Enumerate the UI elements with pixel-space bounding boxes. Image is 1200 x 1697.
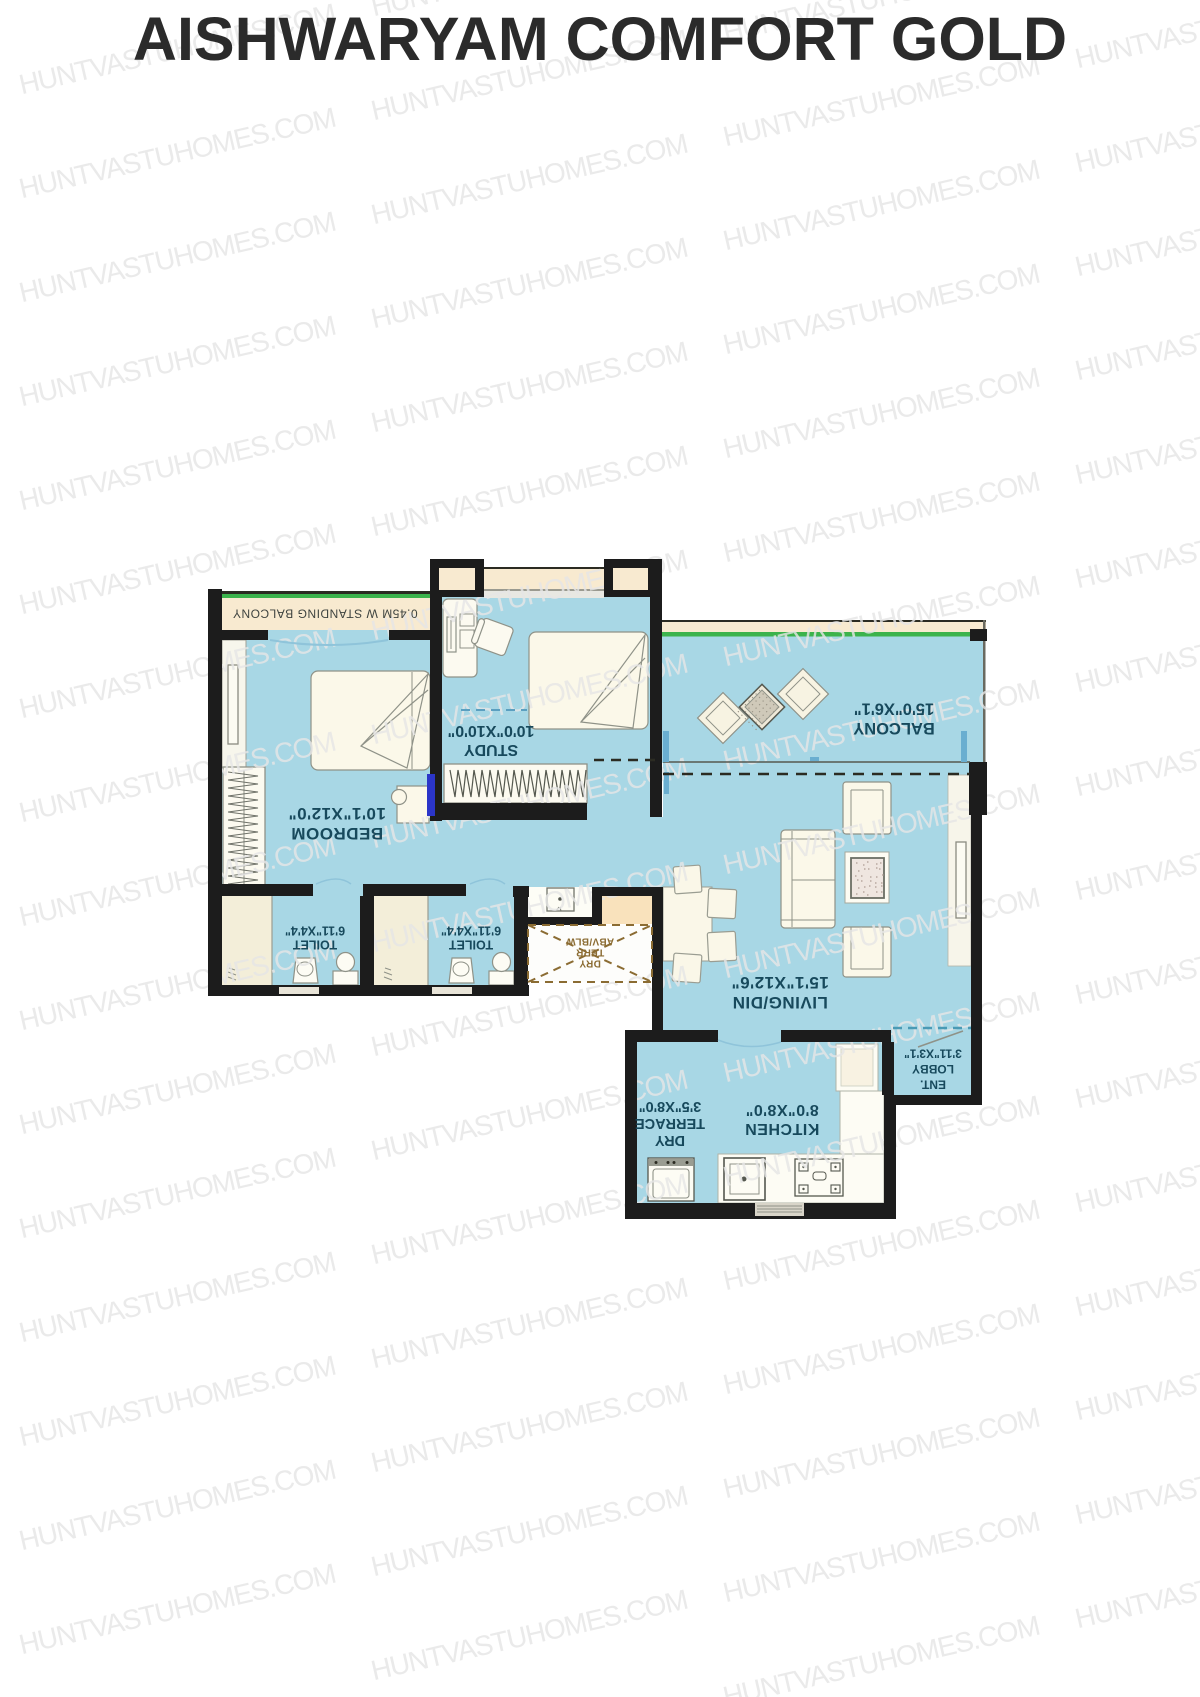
svg-text:TERR: TERR xyxy=(575,947,604,958)
svg-text:ENT.: ENT. xyxy=(920,1077,946,1091)
svg-text:6'11"X4'4": 6'11"X4'4" xyxy=(441,924,501,938)
svg-text:8'0"X8'0": 8'0"X8'0" xyxy=(745,1101,819,1118)
svg-text:6'11"X4'4": 6'11"X4'4" xyxy=(285,924,345,938)
svg-text:LOBBY: LOBBY xyxy=(912,1062,954,1076)
svg-text:BALCONY: BALCONY xyxy=(853,719,935,737)
svg-text:10'0"X10'0": 10'0"X10'0" xyxy=(448,722,535,739)
svg-text:10'1"X12'0": 10'1"X12'0" xyxy=(288,804,386,823)
svg-text:15'0"X6'1": 15'0"X6'1" xyxy=(854,699,934,717)
svg-text:TOILET: TOILET xyxy=(449,938,494,952)
svg-text:3'5"X8'0": 3'5"X8'0" xyxy=(639,1098,702,1114)
svg-text:3'11"X3'1": 3'11"X3'1" xyxy=(904,1046,962,1060)
svg-text:TERRACE: TERRACE xyxy=(635,1115,705,1131)
svg-text:ABV/BLW: ABV/BLW xyxy=(566,936,614,947)
svg-text:DRY: DRY xyxy=(579,958,601,969)
svg-text:LIVING/DIN: LIVING/DIN xyxy=(732,993,828,1012)
svg-text:15'1"X12'6": 15'1"X12'6" xyxy=(731,973,829,992)
svg-text:0.45M W STANDING BALCONY: 0.45M W STANDING BALCONY xyxy=(232,606,417,620)
svg-text:TOILET: TOILET xyxy=(293,938,338,952)
svg-text:DRY: DRY xyxy=(655,1132,685,1148)
svg-text:BEDROOM: BEDROOM xyxy=(291,824,383,843)
svg-text:STUDY: STUDY xyxy=(464,741,519,758)
svg-text:KITCHEN: KITCHEN xyxy=(745,1120,820,1137)
